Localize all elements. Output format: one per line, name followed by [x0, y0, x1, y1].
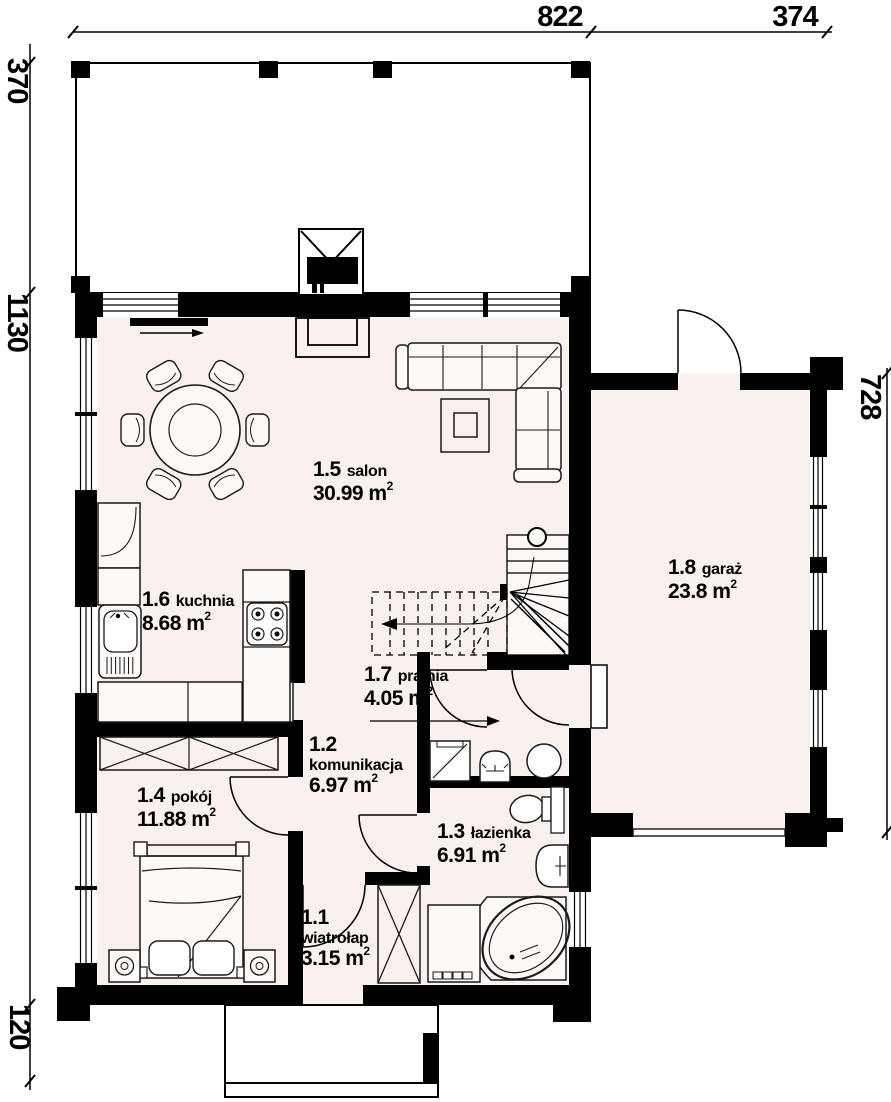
room-label-salon: 1.5salon 30.99 m2 — [313, 458, 393, 505]
room-name: wiatrołap — [301, 930, 369, 947]
room-area: 23.8 m — [668, 580, 730, 603]
dim-label-728: 728 — [853, 374, 886, 419]
room-number: 1.2 — [309, 733, 337, 756]
room-area-sup: 2 — [426, 684, 432, 698]
room-area: 30.99 m — [313, 482, 387, 505]
floor-plan: 822 374 370 1130 120 728 1.5salon 30.99 … — [0, 0, 891, 1102]
room-area: 6.91 m — [437, 844, 499, 867]
dim-label-370: 370 — [0, 58, 33, 103]
room-number: 1.5 — [313, 458, 341, 481]
room-label-pokoj: 1.4pokój 11.88 m2 — [137, 784, 216, 831]
entrance-porch — [225, 1005, 438, 1097]
room-name: pralnia — [398, 668, 448, 685]
room-area: 3.15 m — [301, 947, 363, 970]
room-name: salon — [347, 463, 387, 480]
room-number: 1.6 — [142, 588, 170, 611]
dim-label-1130: 1130 — [0, 293, 33, 352]
room-area: 8.68 m — [142, 612, 204, 635]
room-name: łazienka — [471, 825, 531, 842]
floor-plan-drawing — [0, 0, 891, 1102]
room-area-sup: 2 — [204, 609, 210, 623]
room-number: 1.3 — [437, 820, 465, 843]
room-label-wiatrolap: 1.1 wiatrołap 3.15 m2 — [301, 906, 370, 971]
room-area-sup: 2 — [209, 805, 215, 819]
room-name: pokój — [171, 789, 212, 806]
room-label-pralnia: 1.7pralnia 4.05 m2 — [364, 663, 448, 710]
room-area-sup: 2 — [387, 479, 393, 493]
pillow — [149, 941, 190, 975]
room-label-kuchnia: 1.6kuchnia 8.68 m2 — [142, 588, 234, 635]
room-number: 1.4 — [137, 784, 165, 807]
dim-label-822: 822 — [510, 1, 610, 34]
room-area-sup: 2 — [730, 577, 736, 591]
room-area-sup: 2 — [363, 944, 369, 958]
room-area: 11.88 m — [137, 808, 209, 831]
boiler — [527, 744, 561, 778]
room-area: 6.97 m — [309, 774, 371, 797]
room-area: 4.05 m — [364, 687, 426, 710]
room-name: kuchnia — [176, 593, 234, 610]
room-number: 1.1 — [301, 906, 329, 929]
room-name: garaż — [702, 561, 742, 578]
room-area-sup: 2 — [371, 771, 377, 785]
door-garage-side — [678, 310, 741, 373]
kitchen-sink — [104, 611, 137, 652]
pillow — [193, 941, 234, 975]
garage-gate — [633, 829, 785, 836]
room-area-sup: 2 — [499, 841, 505, 855]
room-name: komunikacja — [309, 757, 403, 774]
threshold — [591, 665, 607, 728]
room-label-garaz: 1.8garaż 23.8 m2 — [668, 556, 742, 603]
dim-label-120: 120 — [2, 1004, 35, 1049]
room-label-lazienka: 1.3łazienka 6.91 m2 — [437, 820, 531, 867]
shower-tray — [428, 905, 480, 982]
room-number: 1.8 — [668, 556, 696, 579]
room-label-komunikacja: 1.2 komunikacja 6.97 m2 — [309, 733, 403, 798]
dining-table — [150, 385, 240, 475]
room-number: 1.7 — [364, 663, 392, 686]
dim-label-374: 374 — [745, 1, 845, 34]
